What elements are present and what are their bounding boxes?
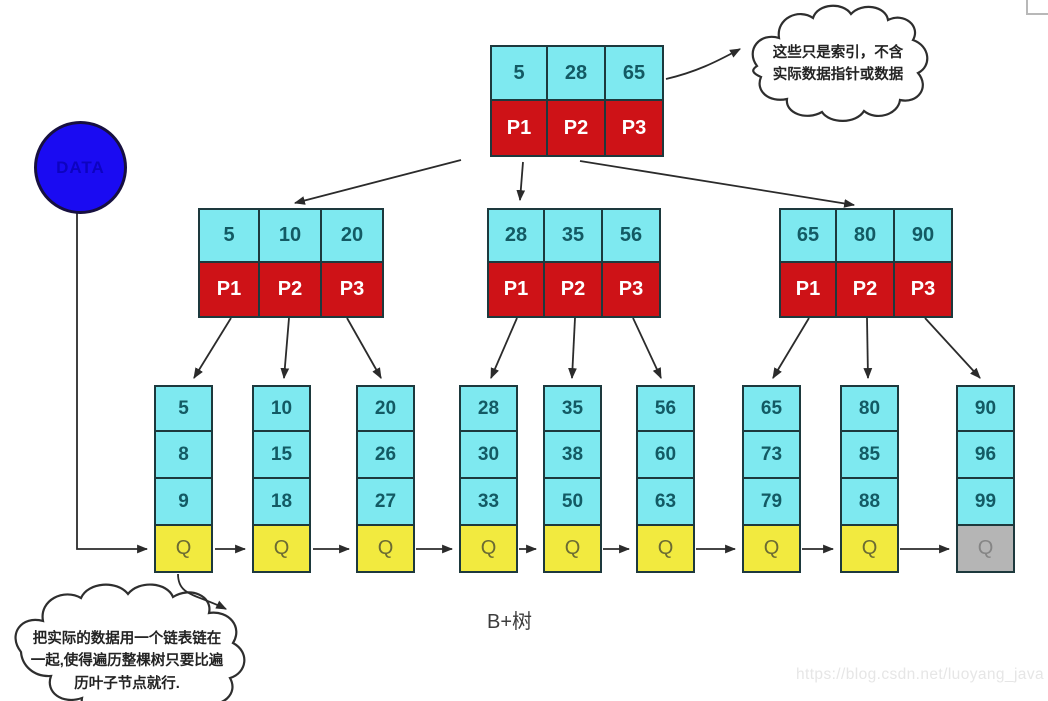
leaf-value-cell: 63 — [636, 479, 695, 526]
key-cell: 35 — [545, 208, 603, 263]
leaf-value-cell: 27 — [356, 479, 415, 526]
internal-node-right: 658090P1P2P3 — [779, 208, 953, 318]
key-cell: 65 — [779, 208, 837, 263]
leaf-node-3: 202627Q — [356, 385, 415, 573]
leaf-value-cell: 79 — [742, 479, 801, 526]
leaf-node-9: 909699Q — [956, 385, 1015, 573]
leaf-value-cell: 5 — [154, 385, 213, 432]
leaf-value-cell: 60 — [636, 432, 695, 479]
leaf-tail-cell: Q — [356, 526, 415, 573]
watermark: https://blog.csdn.net/luoyang_java — [796, 666, 1044, 684]
pointer-cell: P3 — [603, 263, 661, 318]
frame-corner-mark — [1027, 0, 1048, 14]
pointer-cell: P2 — [548, 101, 606, 157]
leaf-value-cell: 90 — [956, 385, 1015, 432]
leaf-value-cell: 35 — [543, 385, 602, 432]
leaf-node-1: 589Q — [154, 385, 213, 573]
arrow-left-p3-to-leaf3 — [347, 318, 381, 378]
leaf-value-cell: 10 — [252, 385, 311, 432]
arrow-data-to-leaf-chain — [77, 209, 147, 549]
data-circle-label: DATA — [56, 158, 105, 178]
leaf-value-cell: 30 — [459, 432, 518, 479]
data-circle: DATA — [34, 121, 127, 214]
pointer-cell: P2 — [837, 263, 895, 318]
key-cell: 10 — [260, 208, 322, 263]
arrow-left-p1-to-leaf1 — [194, 318, 231, 378]
pointer-cell: P1 — [779, 263, 837, 318]
arrow-mid-p1-to-leaf4 — [491, 318, 517, 378]
arrow-right-p2-to-leaf8 — [867, 318, 868, 378]
leaf-value-cell: 18 — [252, 479, 311, 526]
leaf-tail-cell: Q — [636, 526, 695, 573]
pointer-cell: P3 — [606, 101, 664, 157]
arrow-root-to-top-cloud — [666, 49, 740, 79]
leaf-tail-cell: Q — [154, 526, 213, 573]
key-cell: 65 — [606, 45, 664, 101]
pointer-cell: P3 — [322, 263, 384, 318]
pointer-cell: P1 — [198, 263, 260, 318]
leaf-value-cell: 99 — [956, 479, 1015, 526]
pointer-cell: P1 — [490, 101, 548, 157]
leaf-tail-cell: Q — [252, 526, 311, 573]
leaf-value-cell: 38 — [543, 432, 602, 479]
arrow-root-to-internal-right — [580, 161, 854, 205]
key-cell: 28 — [487, 208, 545, 263]
leaf-value-cell: 80 — [840, 385, 899, 432]
key-cell: 5 — [490, 45, 548, 101]
leaf-value-cell: 9 — [154, 479, 213, 526]
leaf-value-cell: 65 — [742, 385, 801, 432]
leaf-value-cell: 50 — [543, 479, 602, 526]
top-callout-text: 这些只是索引，不含实际数据指针或数据 — [772, 42, 904, 87]
bplus-tree-diagram: 52865P1P2P3 51020P1P2P3 283556P1P2P3 658… — [0, 0, 1048, 701]
internal-node-middle: 283556P1P2P3 — [487, 208, 661, 318]
leaf-value-cell: 20 — [356, 385, 415, 432]
pointer-cell: P1 — [487, 263, 545, 318]
leaf-node-8: 808588Q — [840, 385, 899, 573]
arrow-mid-p3-to-leaf6 — [633, 318, 661, 378]
pointer-cell: P3 — [895, 263, 953, 318]
leaf-value-cell: 28 — [459, 385, 518, 432]
arrow-left-p2-to-leaf2 — [284, 318, 289, 378]
key-cell: 20 — [322, 208, 384, 263]
key-cell: 56 — [603, 208, 661, 263]
leaf-value-cell: 56 — [636, 385, 695, 432]
leaf-value-cell: 33 — [459, 479, 518, 526]
leaf-node-5: 353850Q — [543, 385, 602, 573]
leaf-tail-cell: Q — [956, 526, 1015, 573]
arrow-right-p3-to-leaf9 — [925, 318, 980, 378]
arrow-root-to-internal-middle — [520, 162, 523, 200]
bottom-callout-text: 把实际的数据用一个链表链在一起,使得遍历整棵树只要比遍历叶子节点就行. — [27, 628, 227, 695]
leaf-value-cell: 15 — [252, 432, 311, 479]
pointer-cell: P2 — [545, 263, 603, 318]
arrow-root-to-internal-left — [295, 160, 461, 203]
key-cell: 5 — [198, 208, 260, 263]
arrow-mid-p2-to-leaf5 — [572, 318, 575, 378]
root-node: 52865P1P2P3 — [490, 45, 664, 157]
internal-node-left: 51020P1P2P3 — [198, 208, 384, 318]
leaf-node-2: 101518Q — [252, 385, 311, 573]
key-cell: 90 — [895, 208, 953, 263]
leaf-tail-cell: Q — [543, 526, 602, 573]
leaf-value-cell: 8 — [154, 432, 213, 479]
leaf-value-cell: 26 — [356, 432, 415, 479]
leaf-value-cell: 85 — [840, 432, 899, 479]
leaf-value-cell: 88 — [840, 479, 899, 526]
pointer-cell: P2 — [260, 263, 322, 318]
leaf-node-4: 283033Q — [459, 385, 518, 573]
key-cell: 28 — [548, 45, 606, 101]
leaf-tail-cell: Q — [459, 526, 518, 573]
key-cell: 80 — [837, 208, 895, 263]
leaf-value-cell: 96 — [956, 432, 1015, 479]
leaf-tail-cell: Q — [840, 526, 899, 573]
leaf-tail-cell: Q — [742, 526, 801, 573]
leaf-node-7: 657379Q — [742, 385, 801, 573]
leaf-node-6: 566063Q — [636, 385, 695, 573]
diagram-caption: B+树 — [487, 605, 532, 634]
arrow-right-p1-to-leaf7 — [773, 318, 809, 378]
leaf-value-cell: 73 — [742, 432, 801, 479]
